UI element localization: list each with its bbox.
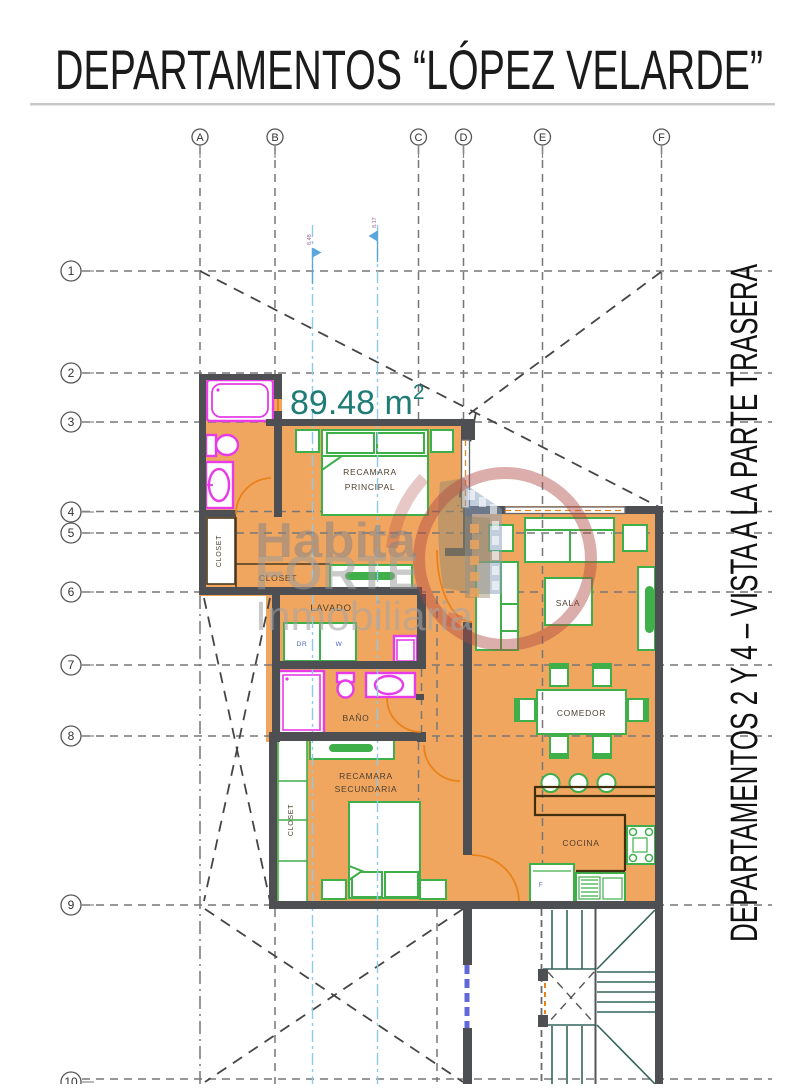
svg-text:DEPARTAMENTOS 2 Y 4 – VISTA A: DEPARTAMENTOS 2 Y 4 – VISTA A LA PARTE T… <box>724 264 766 942</box>
svg-text:A: A <box>196 132 204 144</box>
svg-text:D: D <box>460 132 468 144</box>
svg-text:DR: DR <box>297 641 308 648</box>
svg-text:COCINA: COCINA <box>562 838 599 848</box>
svg-text:CLOSET: CLOSET <box>216 535 223 567</box>
svg-text:SECUNDARIA: SECUNDARIA <box>335 784 398 794</box>
svg-text:1: 1 <box>68 264 75 278</box>
svg-text:4: 4 <box>68 505 75 519</box>
svg-text:DEPARTAMENTOS “LÓPEZ VELARDE”: DEPARTAMENTOS “LÓPEZ VELARDE” <box>55 38 763 101</box>
svg-text:PRINCIPAL: PRINCIPAL <box>345 482 396 492</box>
svg-text:8.17: 8.17 <box>372 217 378 228</box>
svg-text:B: B <box>271 132 278 144</box>
svg-text:9: 9 <box>68 898 75 912</box>
svg-text:6: 6 <box>68 585 75 599</box>
svg-text:COMEDOR: COMEDOR <box>557 708 606 718</box>
svg-text:8.48: 8.48 <box>307 234 313 245</box>
svg-text:F: F <box>539 882 544 889</box>
svg-text:Inmobiliaria: Inmobiliaria <box>255 593 473 639</box>
svg-text:8: 8 <box>68 729 75 743</box>
svg-text:C: C <box>415 132 423 144</box>
svg-text:W: W <box>336 641 343 648</box>
svg-text:10: 10 <box>64 1075 78 1084</box>
svg-text:7: 7 <box>68 658 75 672</box>
svg-text:E: E <box>539 132 546 144</box>
svg-text:5: 5 <box>68 526 75 540</box>
svg-text:3: 3 <box>68 415 75 429</box>
svg-text:89.48 m2: 89.48 m2 <box>290 381 425 422</box>
svg-text:2: 2 <box>68 366 75 380</box>
svg-text:RECAMARA: RECAMARA <box>343 467 397 477</box>
svg-text:RECAMARA: RECAMARA <box>339 771 393 781</box>
svg-text:F: F <box>658 132 665 144</box>
svg-text:CLOSET: CLOSET <box>288 804 295 836</box>
svg-text:BAÑO: BAÑO <box>343 713 370 723</box>
